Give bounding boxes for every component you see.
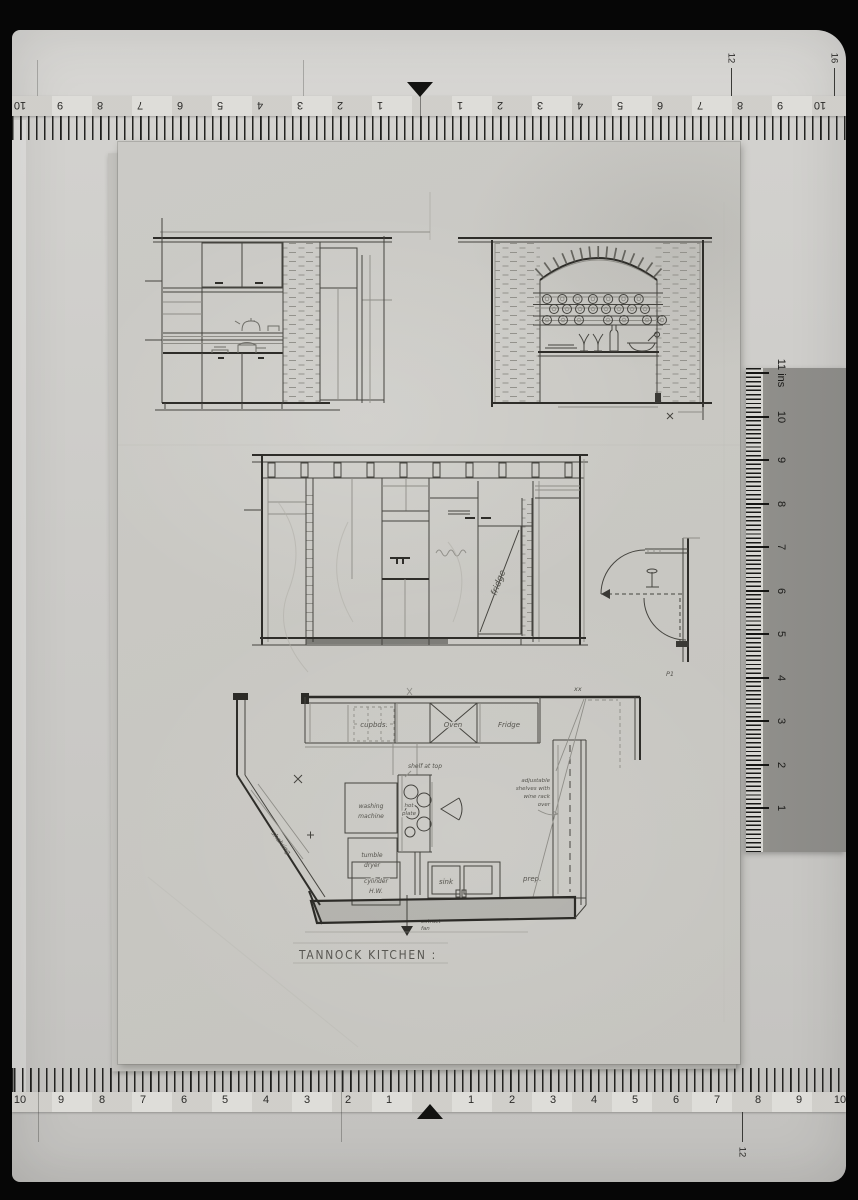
inch-number: 7 (775, 544, 787, 550)
board-edge-highlight (12, 120, 26, 1100)
top-ruler-unit-ticks (12, 116, 846, 140)
ruler-number: 6 (181, 1094, 187, 1106)
photograph-of-drawing: 1234567891012345678910 1216 123456789101… (0, 0, 858, 1200)
fridge-elevation-label: fridge (490, 568, 509, 597)
ruler-number: 5 (222, 1094, 228, 1106)
inch-number: 6 (775, 588, 787, 594)
ruler-number: 3 (304, 1094, 310, 1106)
dryer-label-2: dryer (364, 862, 381, 869)
inch-tick (746, 459, 769, 461)
brick-wall-left (495, 243, 540, 403)
ruler-number: 4 (257, 99, 263, 111)
secondary-scale-number: 16 (829, 53, 840, 64)
secondary-scale-line (742, 1112, 743, 1142)
ruler-number: 2 (337, 99, 343, 111)
right-note-3: wine rack (524, 794, 551, 800)
secondary-scale-number: 12 (726, 53, 737, 64)
ruler-number: 5 (617, 99, 623, 111)
ruler-number: 10 (14, 1094, 26, 1106)
brick-strip-right (522, 498, 532, 636)
detail-door-swing: P1 (601, 538, 700, 678)
right-note-2: shelves with (516, 786, 551, 792)
inch-tick (746, 807, 769, 809)
inch-tick (746, 633, 769, 635)
ruler-number: 4 (591, 1094, 597, 1106)
hot-plate-label-1: hot (404, 803, 414, 809)
washing-machine-label-1: washing (359, 803, 384, 810)
right-note-1: adjustable (521, 778, 550, 784)
side-ruler-ticks (746, 368, 761, 852)
ruler-number: 1 (457, 99, 463, 111)
hot-plate-label-2: plate (401, 811, 417, 817)
teapots-on-shelf (235, 318, 279, 331)
inch-number: 9 (775, 457, 787, 463)
elevation-arched-alcove (458, 238, 712, 420)
secondary-scale-number: 12 (737, 1147, 748, 1158)
elevation-kitchen-wall: fridge (244, 455, 588, 672)
secondary-scale-line (834, 68, 835, 96)
inch-number: 4 (775, 675, 787, 681)
right-note-4: over (538, 802, 551, 808)
funnel-mark (441, 798, 462, 820)
ruler-number: 10 (834, 1094, 846, 1106)
inch-tick (746, 372, 769, 374)
cupboards-label: cupbds. (360, 721, 388, 729)
inch-number: 10 (775, 411, 787, 423)
ruler-number: 5 (217, 99, 223, 111)
drawing-title: TANNOCK KITCHEN : (298, 947, 437, 962)
plate-racks (543, 295, 667, 325)
base-shadow (306, 639, 448, 644)
inch-number: 2 (775, 762, 787, 768)
door-leaf (676, 641, 689, 647)
ruler-number: 1 (468, 1094, 474, 1106)
fridge-label: Fridge (498, 721, 520, 729)
washing-machine-label-2: machine (358, 813, 384, 820)
ruler-number: 3 (537, 99, 543, 111)
ruler-number: 6 (673, 1094, 679, 1106)
title-block: TANNOCK KITCHEN : (293, 943, 448, 963)
inch-number: 11 ins (775, 359, 787, 388)
extract-label-2: fan (421, 926, 430, 932)
ruler-number: 7 (140, 1094, 146, 1106)
ruler-number: 9 (58, 1094, 64, 1106)
ruler-number: 8 (737, 99, 743, 111)
wall-end (233, 693, 248, 700)
ceiling-joists (268, 463, 572, 477)
ruler-zero-pointer-top (407, 82, 433, 97)
ruler-zero-pointer-bottom (417, 1104, 443, 1119)
ruler-number: 8 (99, 1094, 105, 1106)
ruler-number: 6 (177, 99, 183, 111)
inch-tick (746, 416, 769, 418)
ruler-number: 10 (14, 99, 26, 111)
oven-label: Oven (444, 721, 462, 729)
shelf-bracket (655, 393, 661, 403)
extract-arrow (401, 926, 413, 936)
inch-tick (746, 503, 769, 505)
corner-mark: xx (573, 685, 582, 693)
inch-tick (746, 677, 769, 679)
inch-number: 5 (775, 631, 787, 637)
scale-line (303, 60, 304, 96)
cylinder-label-2: H.W. (369, 888, 383, 895)
inch-tick (746, 546, 769, 548)
tracing-paper-sheet: fridge (118, 142, 740, 1064)
ruler-number: 1 (386, 1094, 392, 1106)
ruler-number: 6 (657, 99, 663, 111)
secondary-scale-line (731, 68, 732, 96)
brick-strip (306, 490, 313, 637)
pots-on-counter (212, 343, 266, 354)
ruler-number: 4 (263, 1094, 269, 1106)
scale-line (38, 1068, 39, 1142)
inch-tick (746, 590, 769, 592)
inch-number: 8 (775, 501, 787, 507)
shelving-label: shelving (270, 830, 293, 857)
floor-plan: cupbds. Oven Fridge xx shelving washing … (233, 685, 640, 936)
detail-mark: P1 (666, 670, 674, 678)
brick-pier (283, 242, 320, 403)
ruler-number: 2 (345, 1094, 351, 1106)
ruler-number: 7 (697, 99, 703, 111)
ruler-number: 9 (777, 99, 783, 111)
scale-line (37, 60, 38, 96)
ruler-number: 7 (714, 1094, 720, 1106)
ruler-number: 3 (550, 1094, 556, 1106)
brick-wall-right (655, 243, 700, 403)
bottom-ruler-unit-ticks (12, 1068, 846, 1092)
ruler-number: 7 (137, 99, 143, 111)
elevation-dresser-wall (145, 218, 430, 410)
ruler-number: 2 (497, 99, 503, 111)
pencil-sketch: fridge (118, 142, 740, 1064)
ruler-number: 9 (796, 1094, 802, 1106)
arrowhead (601, 589, 610, 599)
glassware-on-shelf (545, 325, 660, 351)
ruler-number: 2 (509, 1094, 515, 1106)
dryer-label-1: tumble (361, 852, 382, 859)
bottom-wall (311, 897, 575, 923)
zero-line-top (420, 96, 421, 140)
arch-voussoirs (535, 246, 661, 277)
ruler-number: 9 (57, 99, 63, 111)
sink-label: sink (439, 878, 454, 886)
inch-number: 1 (775, 805, 787, 811)
zero-line-bottom (430, 1068, 431, 1092)
ruler-number: 1 (377, 99, 383, 111)
inch-number: 3 (775, 718, 787, 724)
scale-line (341, 1068, 342, 1142)
ruler-number: 3 (297, 99, 303, 111)
ruler-number: 8 (755, 1094, 761, 1106)
ruler-number: 4 (577, 99, 583, 111)
cylinder-label-1: cylinder (364, 878, 388, 885)
inch-tick (746, 764, 769, 766)
shelf-note: shelf at top (408, 763, 442, 770)
ruler-number: 5 (632, 1094, 638, 1106)
ruler-number: 10 (814, 99, 826, 111)
inch-tick (746, 720, 769, 722)
ruler-number: 8 (97, 99, 103, 111)
